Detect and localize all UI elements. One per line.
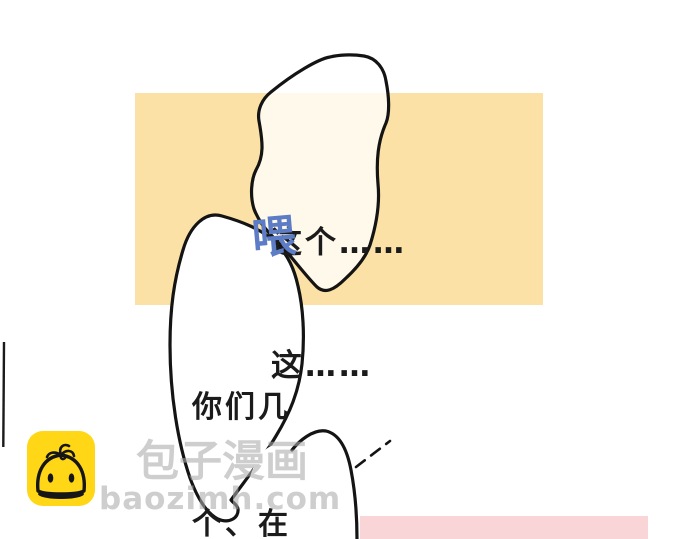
baozi-bun-icon-art: [27, 431, 95, 506]
pink-background-panel: [360, 516, 648, 539]
comic-page: 这个…… 这…… 喂 你们几 个、在 聊什么 呢? 从刚才 开始就 包子漫画 b…: [0, 0, 690, 539]
interjection-text: 喂: [250, 214, 298, 262]
bubble1-line2: 这……: [271, 346, 407, 387]
bubble2-line1: 你们几: [192, 388, 291, 427]
panel-edge-line: [3, 342, 4, 447]
bubble1-text: 这个…… 这……: [271, 141, 407, 469]
baozi-icon: [27, 431, 95, 506]
bubble3-text: 从刚才 开始就: [256, 488, 343, 539]
